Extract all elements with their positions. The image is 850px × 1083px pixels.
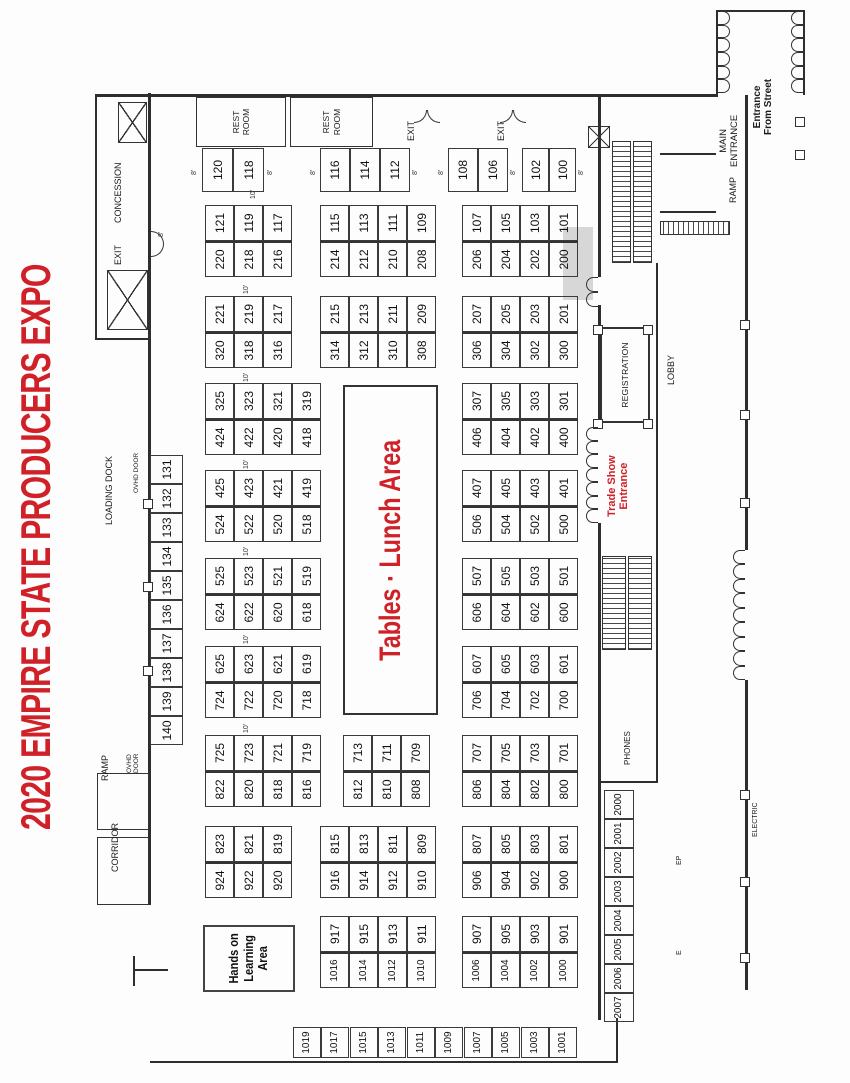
elevator-shaft (118, 102, 147, 143)
wall-column (740, 498, 750, 508)
booth-401: 401 (549, 470, 578, 506)
booth-209: 209 (407, 296, 436, 332)
booth-206: 206 (462, 241, 491, 277)
booth-920: 920 (263, 862, 292, 898)
tables-lunch-area-label: Tables · Lunch Area (374, 439, 408, 660)
booth-218: 218 (234, 241, 263, 277)
booth-220: 220 (205, 241, 234, 277)
booth-1019: 1019 (293, 1027, 321, 1058)
booth-425: 425 (205, 470, 234, 506)
lobby-label: LOBBY (666, 355, 676, 385)
booth-204: 204 (491, 241, 520, 277)
booth-605: 605 (491, 646, 520, 682)
booth-601: 601 (549, 646, 578, 682)
wall-segment (660, 153, 716, 155)
wall-column (143, 582, 153, 592)
booth-301: 301 (549, 383, 578, 419)
wall-segment (616, 1018, 618, 1063)
booth-821: 821 (234, 826, 263, 862)
booth-318: 318 (234, 332, 263, 368)
booth-709: 709 (401, 735, 430, 771)
booth-623: 623 (234, 646, 263, 682)
booth-2003: 2003 (604, 877, 634, 906)
booth-211: 211 (378, 296, 407, 332)
booth-521: 521 (263, 558, 292, 594)
booth-422: 422 (234, 419, 263, 455)
ovhd-door-2-label: OVHD DOOR (126, 754, 141, 774)
booth-118: 118 (233, 148, 264, 192)
booth-924: 924 (205, 862, 234, 898)
booth-607: 607 (462, 646, 491, 682)
booth-119: 119 (234, 205, 263, 241)
booth-803: 803 (520, 826, 549, 862)
booth-807: 807 (462, 826, 491, 862)
booth-622: 622 (234, 594, 263, 630)
booth-2002: 2002 (604, 848, 634, 877)
booth-600: 600 (549, 594, 578, 630)
ramp-left-label: RAMP (100, 755, 110, 781)
booth-420: 420 (263, 419, 292, 455)
exit-right-1-label: EXIT (406, 121, 416, 141)
booth-216: 216 (263, 241, 292, 277)
booth-217: 217 (263, 296, 292, 332)
trade-show-entrance-label: Trade Show Entrance (606, 455, 631, 517)
door-arc (151, 244, 164, 257)
booth-723: 723 (234, 735, 263, 771)
booth-818: 818 (263, 771, 292, 807)
booth-139: 139 (150, 687, 183, 716)
booth-519: 519 (292, 558, 321, 594)
scallop-arc (791, 66, 803, 80)
scallop-arc (718, 25, 730, 39)
booth-904: 904 (491, 862, 520, 898)
scallop-arc (733, 666, 745, 680)
booth-319: 319 (292, 383, 321, 419)
wall-segment (95, 95, 97, 340)
booth-905: 905 (491, 916, 520, 952)
door-arc (427, 110, 440, 123)
rest-room-1: REST ROOM (196, 97, 286, 147)
booth-501: 501 (549, 558, 578, 594)
scallop-arc (733, 550, 745, 564)
booth-505: 505 (491, 558, 520, 594)
booth-114: 114 (350, 148, 380, 192)
rest-room-1-label: REST ROOM (231, 109, 251, 135)
booth-624: 624 (205, 594, 234, 630)
wall-column (143, 666, 153, 676)
booth-2000: 2000 (604, 790, 634, 819)
scallop-arc (733, 622, 745, 636)
wall-segment (598, 781, 658, 783)
booth-418: 418 (292, 419, 321, 455)
scallop-arc (586, 496, 598, 510)
booth-424: 424 (205, 419, 234, 455)
booth-136: 136 (150, 600, 183, 629)
booth-203: 203 (520, 296, 549, 332)
booth-506: 506 (462, 506, 491, 542)
booth-302: 302 (520, 332, 549, 368)
booth-2007: 2007 (604, 993, 634, 1022)
dimension-label: 10' (243, 635, 250, 644)
booth-713: 713 (343, 735, 372, 771)
booth-701: 701 (549, 735, 578, 771)
hands-on-learning-area-label: Hands on Learning Area (227, 933, 272, 983)
dimension-label: 8' (158, 232, 165, 237)
wall-segment (95, 338, 150, 340)
booth-902: 902 (520, 862, 549, 898)
booth-915: 915 (349, 916, 378, 952)
door-arc (513, 110, 526, 123)
wall-segment (660, 211, 716, 213)
booth-1003: 1003 (521, 1027, 549, 1058)
booth-906: 906 (462, 862, 491, 898)
booth-1016: 1016 (320, 952, 349, 988)
booth-138: 138 (150, 658, 183, 687)
booth-214: 214 (320, 241, 349, 277)
dimension-label: 10' (250, 190, 257, 199)
curtain-door-opening (791, 11, 803, 93)
booth-2006: 2006 (604, 964, 634, 993)
staircase (602, 556, 626, 650)
booth-720: 720 (263, 682, 292, 718)
booth-320: 320 (205, 332, 234, 368)
booth-816: 816 (292, 771, 321, 807)
booth-1017: 1017 (321, 1027, 349, 1058)
hands-on-learning-area: Hands on Learning Area (203, 925, 295, 992)
booth-703: 703 (520, 735, 549, 771)
booth-922: 922 (234, 862, 263, 898)
wall-column (143, 499, 153, 509)
wall-column (740, 877, 750, 887)
scallop-arc (718, 79, 730, 93)
booth-1006: 1006 (462, 952, 491, 988)
booth-1015: 1015 (350, 1027, 378, 1058)
registration-desk: REGISTRATION (600, 327, 650, 423)
booth-103: 103 (520, 205, 549, 241)
booth-523: 523 (234, 558, 263, 594)
booth-321: 321 (263, 383, 292, 419)
booth-707: 707 (462, 735, 491, 771)
booth-917: 917 (320, 916, 349, 952)
staircase (633, 141, 652, 263)
scallop-arc (733, 579, 745, 593)
booth-802: 802 (520, 771, 549, 807)
scallop-arc (791, 25, 803, 39)
booth-307: 307 (462, 383, 491, 419)
page-title: 2020 EMPIRE STATE PRODUCERS EXPO (12, 264, 60, 830)
booth-504: 504 (491, 506, 520, 542)
exit-top-label: EXIT (113, 245, 123, 265)
booth-400: 400 (549, 419, 578, 455)
wall-column (740, 790, 750, 800)
booth-804: 804 (491, 771, 520, 807)
booth-820: 820 (234, 771, 263, 807)
phones-label: PHONES (624, 731, 633, 765)
booth-117: 117 (263, 205, 292, 241)
curtain-door-opening (586, 427, 598, 523)
dimension-label: 8' (578, 170, 585, 175)
booth-212: 212 (349, 241, 378, 277)
dimension-label: 10' (243, 373, 250, 382)
dimension-label: 10' (243, 285, 250, 294)
dimension-label: 8' (412, 170, 419, 175)
booth-809: 809 (407, 826, 436, 862)
booth-215: 215 (320, 296, 349, 332)
booth-525: 525 (205, 558, 234, 594)
booth-910: 910 (407, 862, 436, 898)
scallop-arc (586, 509, 598, 523)
dimension-label: 8' (510, 170, 517, 175)
booth-619: 619 (292, 646, 321, 682)
booth-140: 140 (150, 716, 183, 745)
booth-316: 316 (263, 332, 292, 368)
booth-812: 812 (343, 771, 372, 807)
wall-column (795, 117, 805, 127)
booth-221: 221 (205, 296, 234, 332)
booth-806: 806 (462, 771, 491, 807)
scallop-arc (733, 608, 745, 622)
staircase (612, 141, 631, 263)
booth-310: 310 (378, 332, 407, 368)
booth-725: 725 (205, 735, 234, 771)
booth-704: 704 (491, 682, 520, 718)
registration-label: REGISTRATION (620, 342, 630, 408)
booth-312: 312 (349, 332, 378, 368)
booth-421: 421 (263, 470, 292, 506)
booth-721: 721 (263, 735, 292, 771)
booth-810: 810 (372, 771, 401, 807)
corridor-room (97, 837, 149, 905)
corridor-label: CORRIDOR (110, 823, 120, 872)
scallop-arc (791, 52, 803, 66)
scallop-arc (718, 52, 730, 66)
dimension-label: 8' (310, 170, 317, 175)
booth-520: 520 (263, 506, 292, 542)
booth-1001: 1001 (549, 1027, 577, 1058)
booth-722: 722 (234, 682, 263, 718)
booth-524: 524 (205, 506, 234, 542)
booth-819: 819 (263, 826, 292, 862)
booth-719: 719 (292, 735, 321, 771)
booth-1004: 1004 (491, 952, 520, 988)
booth-815: 815 (320, 826, 349, 862)
scallop-arc (733, 565, 745, 579)
booth-711: 711 (372, 735, 401, 771)
elevator-shaft (107, 270, 148, 330)
booth-2001: 2001 (604, 819, 634, 848)
wall-column (795, 150, 805, 160)
booth-900: 900 (549, 862, 578, 898)
booth-913: 913 (378, 916, 407, 952)
scallop-arc (718, 66, 730, 80)
booth-314: 314 (320, 332, 349, 368)
scallop-arc (718, 11, 730, 25)
booth-406: 406 (462, 419, 491, 455)
booth-2005: 2005 (604, 935, 634, 964)
electric-label: ELECTRIC (752, 802, 760, 837)
booth-621: 621 (263, 646, 292, 682)
scallop-arc (718, 38, 730, 52)
booth-705: 705 (491, 735, 520, 771)
booth-1014: 1014 (349, 952, 378, 988)
booth-132: 132 (150, 484, 183, 513)
booth-403: 403 (520, 470, 549, 506)
scallop-arc (586, 292, 598, 307)
booth-800: 800 (549, 771, 578, 807)
curtain-door-opening (586, 277, 598, 307)
floor-plan-page: 2020 EMPIRE STATE PRODUCERS EXPO Tables … (0, 0, 850, 1083)
booth-102: 102 (522, 148, 549, 192)
scallop-arc (791, 38, 803, 52)
booth-912: 912 (378, 862, 407, 898)
booth-113: 113 (349, 205, 378, 241)
booth-724: 724 (205, 682, 234, 718)
booth-423: 423 (234, 470, 263, 506)
booth-402: 402 (520, 419, 549, 455)
wall-segment (95, 94, 718, 97)
scallop-arc (586, 427, 598, 441)
booth-801: 801 (549, 826, 578, 862)
booth-1010: 1010 (407, 952, 436, 988)
booth-105: 105 (491, 205, 520, 241)
corridor-room (97, 773, 149, 830)
wall-segment (803, 10, 805, 95)
booth-1009: 1009 (435, 1027, 463, 1058)
booth-200: 200 (549, 241, 578, 277)
booth-1007: 1007 (464, 1027, 492, 1058)
booth-805: 805 (491, 826, 520, 862)
booth-300: 300 (549, 332, 578, 368)
booth-1011: 1011 (407, 1027, 435, 1058)
scallop-arc (791, 79, 803, 93)
booth-112: 112 (380, 148, 410, 192)
ramp-walkway (660, 221, 730, 235)
e-mark: E (676, 950, 684, 955)
booth-207: 207 (462, 296, 491, 332)
booth-305: 305 (491, 383, 520, 419)
booth-503: 503 (520, 558, 549, 594)
dimension-label: 10' (243, 547, 250, 556)
wall-column (593, 325, 603, 335)
tables-lunch-area: Tables · Lunch Area (343, 385, 438, 715)
booth-304: 304 (491, 332, 520, 368)
booth-111: 111 (378, 205, 407, 241)
booth-202: 202 (520, 241, 549, 277)
main-entrance-label: MAIN ENTRANCE (719, 115, 740, 167)
booth-808: 808 (401, 771, 430, 807)
booth-308: 308 (407, 332, 436, 368)
booth-323: 323 (234, 383, 263, 419)
booth-718: 718 (292, 682, 321, 718)
booth-1012: 1012 (378, 952, 407, 988)
booth-604: 604 (491, 594, 520, 630)
ep-mark: EP (676, 856, 684, 865)
booth-811: 811 (378, 826, 407, 862)
entrance-from-street-label: Entrance From Street (752, 79, 774, 135)
double-door-swing (414, 110, 440, 123)
rest-room-2-label: REST ROOM (321, 109, 341, 135)
scallop-arc (733, 637, 745, 651)
booth-121: 121 (205, 205, 234, 241)
exit-right-2-label: EXIT (496, 121, 506, 141)
booth-115: 115 (320, 205, 349, 241)
booth-502: 502 (520, 506, 549, 542)
dimension-label: 8' (438, 170, 445, 175)
booth-210: 210 (378, 241, 407, 277)
rest-room-2: REST ROOM (290, 97, 373, 147)
booth-522: 522 (234, 506, 263, 542)
scallop-arc (586, 454, 598, 468)
dimension-label: 10' (243, 460, 250, 469)
booth-101: 101 (549, 205, 578, 241)
concession-label: CONCESSION (113, 162, 123, 223)
wall-column (740, 410, 750, 420)
booth-407: 407 (462, 470, 491, 506)
dimension-label: 8' (267, 170, 274, 175)
scallop-arc (733, 651, 745, 665)
booth-625: 625 (205, 646, 234, 682)
dimension-label: 10' (243, 724, 250, 733)
wall-segment (150, 1061, 618, 1063)
booth-907: 907 (462, 916, 491, 952)
wall-column (643, 419, 653, 429)
booth-106: 106 (478, 148, 508, 192)
booth-404: 404 (491, 419, 520, 455)
booth-903: 903 (520, 916, 549, 952)
wall-column (740, 953, 750, 963)
booth-405: 405 (491, 470, 520, 506)
booth-325: 325 (205, 383, 234, 419)
elevator-shaft (588, 126, 610, 148)
booth-602: 602 (520, 594, 549, 630)
ovhd-door-1-label: OVHD DOOR (133, 453, 140, 493)
booth-911: 911 (407, 916, 436, 952)
curtain-door-opening (718, 11, 730, 93)
booth-702: 702 (520, 682, 549, 718)
booth-813: 813 (349, 826, 378, 862)
booth-916: 916 (320, 862, 349, 898)
booth-120: 120 (202, 148, 233, 192)
booth-500: 500 (549, 506, 578, 542)
booth-822: 822 (205, 771, 234, 807)
booth-303: 303 (520, 383, 549, 419)
scallop-arc (586, 468, 598, 482)
wall-column (740, 320, 750, 330)
booth-1002: 1002 (520, 952, 549, 988)
expo-floor-plan: 2020 EMPIRE STATE PRODUCERS EXPO Tables … (0, 0, 850, 1083)
scallop-arc (733, 593, 745, 607)
booth-108: 108 (448, 148, 478, 192)
booth-2004: 2004 (604, 906, 634, 935)
wall-segment (745, 680, 748, 990)
booth-1005: 1005 (492, 1027, 520, 1058)
wall-segment (598, 95, 601, 277)
scallop-arc (586, 277, 598, 292)
booth-107: 107 (462, 205, 491, 241)
wall-segment (598, 305, 601, 427)
scallop-arc (791, 11, 803, 25)
booth-419: 419 (292, 470, 321, 506)
booth-133: 133 (150, 513, 183, 542)
booth-116: 116 (320, 148, 350, 192)
booth-109: 109 (407, 205, 436, 241)
booth-137: 137 (150, 629, 183, 658)
booth-618: 618 (292, 594, 321, 630)
booth-706: 706 (462, 682, 491, 718)
booth-606: 606 (462, 594, 491, 630)
booth-134: 134 (150, 542, 183, 571)
scallop-arc (586, 482, 598, 496)
